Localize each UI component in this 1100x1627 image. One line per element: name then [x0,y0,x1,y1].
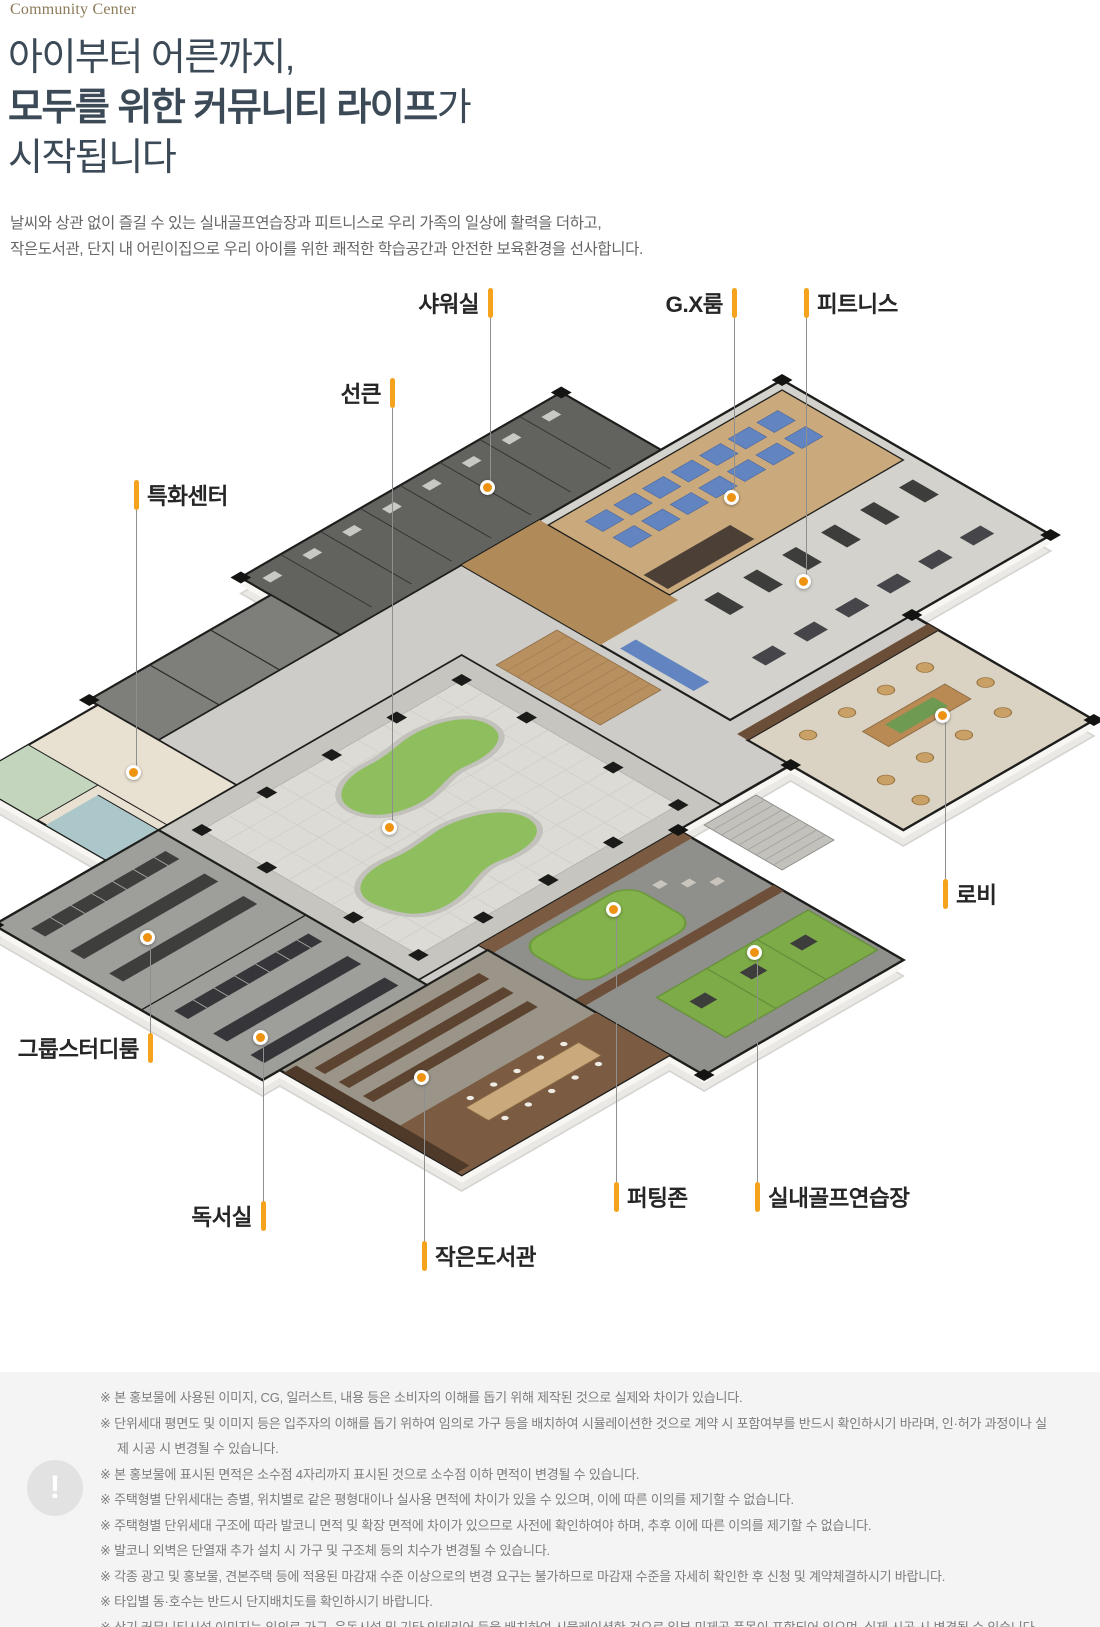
disclaimer-line-5: ※ 주택형별 단위세대 구조에 따라 발코니 면적 및 확장 면적에 차이가 있… [100,1513,1050,1539]
disclaimer-line-1: ※ 본 홍보물에 사용된 이미지, CG, 일러스트, 내용 등은 소비자의 이… [100,1385,1050,1411]
title-line-3: 시작됩니다 [8,133,470,183]
title-line-2-bold: 모두를 위한 커뮤니티 라이프 [8,87,437,129]
floorplan [0,280,1100,1340]
page-description: 날씨와 상관 없이 즐길 수 있는 실내골프연습장과 피트니스로 우리 가족의 … [10,211,643,263]
disclaimer-line-9: ※ 상기 커뮤니티시설 이미지는 임의로 가구, 운동시설 및 기타 인테리어 … [100,1615,1050,1627]
description-line-2: 작은도서관, 단지 내 어린이집으로 우리 아이를 위한 쾌적한 학습공간과 안… [10,237,643,263]
disclaimer-line-4: ※ 주택형별 단위세대는 층별, 위치별로 같은 평형대이나 실사용 면적에 차… [100,1487,1050,1513]
title-line-2-suffix: 가 [437,87,470,129]
community-center-page: Community Center 아이부터 어른까지, 모두를 위한 커뮤니티 … [0,0,1100,1627]
disclaimer-line-8: ※ 타입별 동·호수는 반드시 단지배치도를 확인하시기 바랍니다. [100,1589,1050,1615]
disclaimer-line-7: ※ 각종 광고 및 홍보물, 견본주택 등에 적용된 마감재 수준 이상으로의 … [100,1564,1050,1590]
title-line-2: 모두를 위한 커뮤니티 라이프가 [8,83,470,133]
disclaimer-line-6: ※ 발코니 외벽은 단열재 추가 설치 시 가구 및 구조체 등의 치수가 변경… [100,1538,1050,1564]
page-title: 아이부터 어른까지, 모두를 위한 커뮤니티 라이프가 시작됩니다 [8,33,470,183]
floorplan-illustration [0,280,1100,1340]
description-line-1: 날씨와 상관 없이 즐길 수 있는 실내골프연습장과 피트니스로 우리 가족의 … [10,211,643,237]
disclaimer-line-2: ※ 단위세대 평면도 및 이미지 등은 입주자의 이해를 돕기 위하여 임의로 … [100,1411,1050,1462]
eyebrow: Community Center [10,1,136,19]
title-line-1: 아이부터 어른까지, [8,33,470,83]
disclaimer-section: ! ※ 본 홍보물에 사용된 이미지, CG, 일러스트, 내용 등은 소비자의… [0,1372,1100,1627]
exclamation-icon: ! [27,1460,83,1516]
disclaimer-lines: ※ 본 홍보물에 사용된 이미지, CG, 일러스트, 내용 등은 소비자의 이… [100,1385,1050,1627]
disclaimer-line-3: ※ 본 홍보물에 표시된 면적은 소수점 4자리까지 표시된 것으로 소수점 이… [100,1462,1050,1488]
